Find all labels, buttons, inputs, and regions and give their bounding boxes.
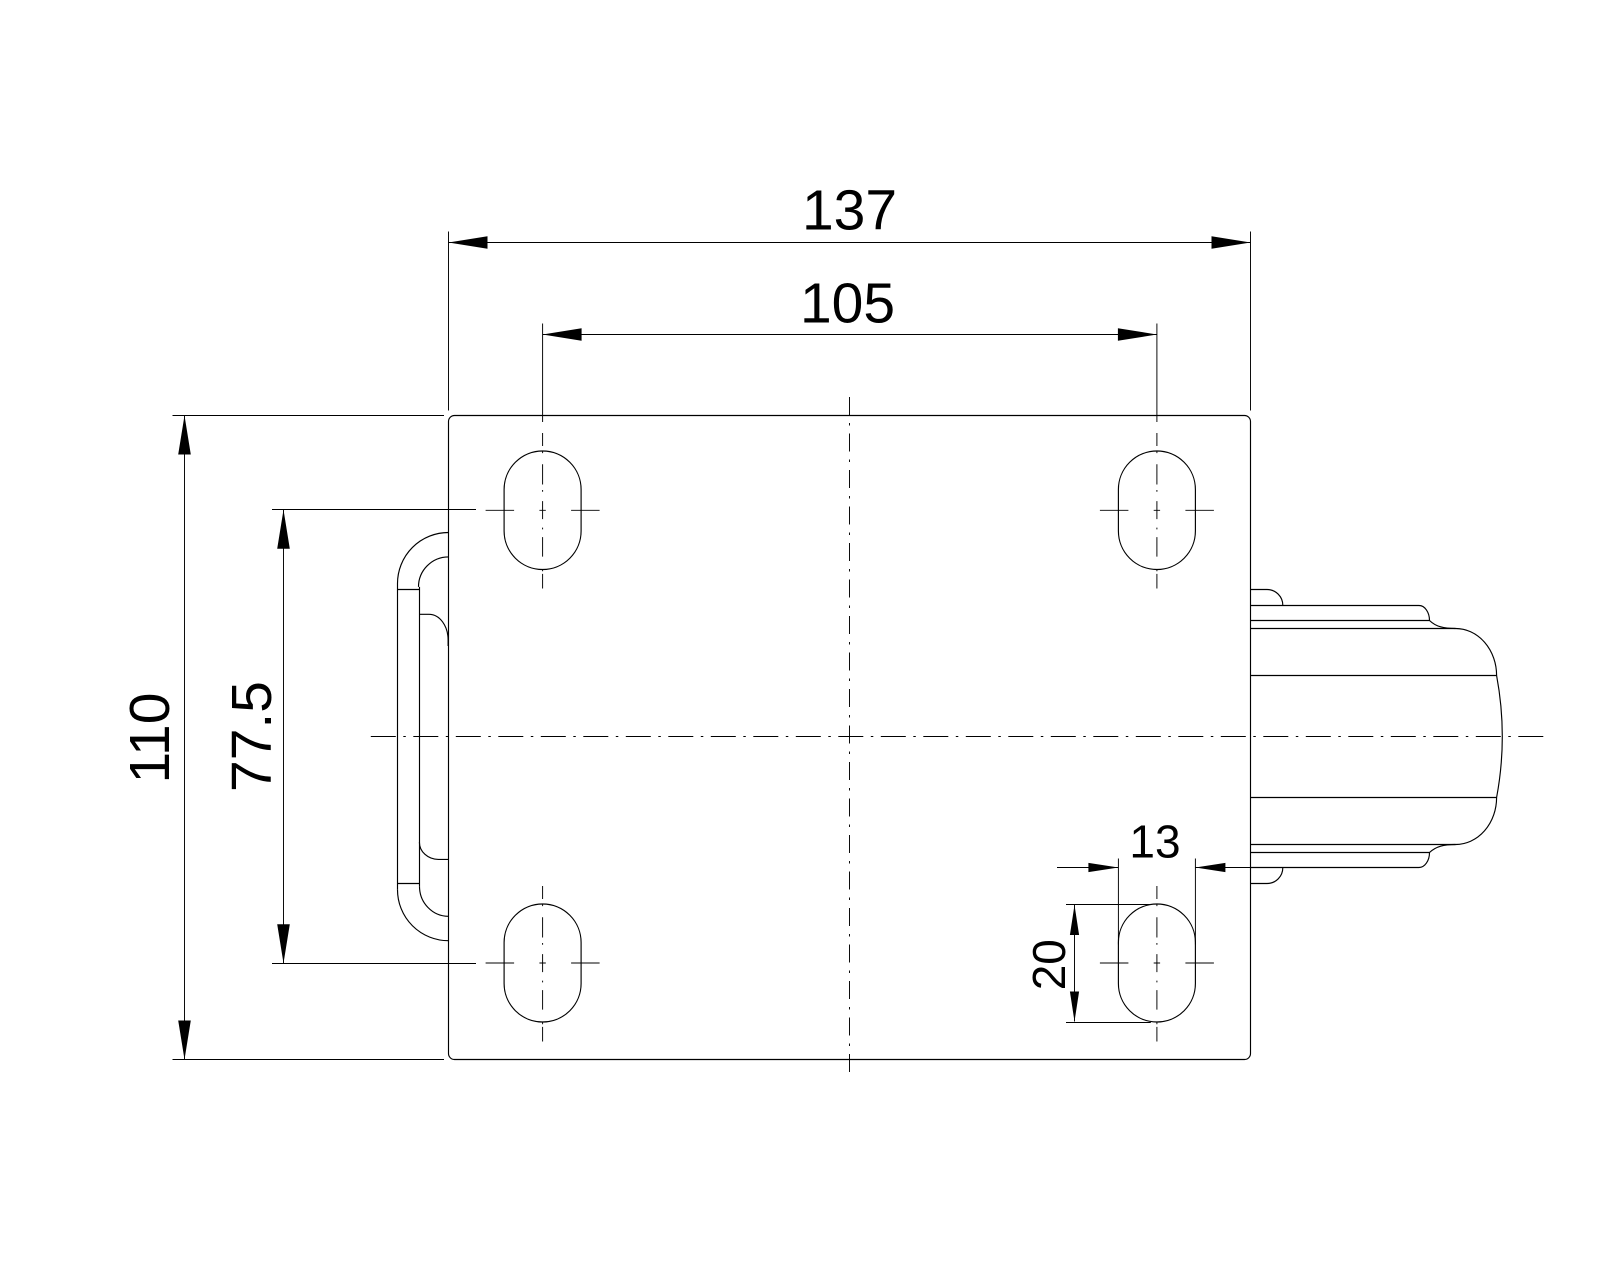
svg-text:137: 137 bbox=[802, 179, 897, 243]
svg-text:77.5: 77.5 bbox=[220, 681, 284, 792]
svg-text:105: 105 bbox=[800, 271, 895, 335]
svg-text:13: 13 bbox=[1129, 816, 1180, 868]
svg-text:20: 20 bbox=[1023, 939, 1075, 990]
svg-text:110: 110 bbox=[118, 693, 182, 784]
